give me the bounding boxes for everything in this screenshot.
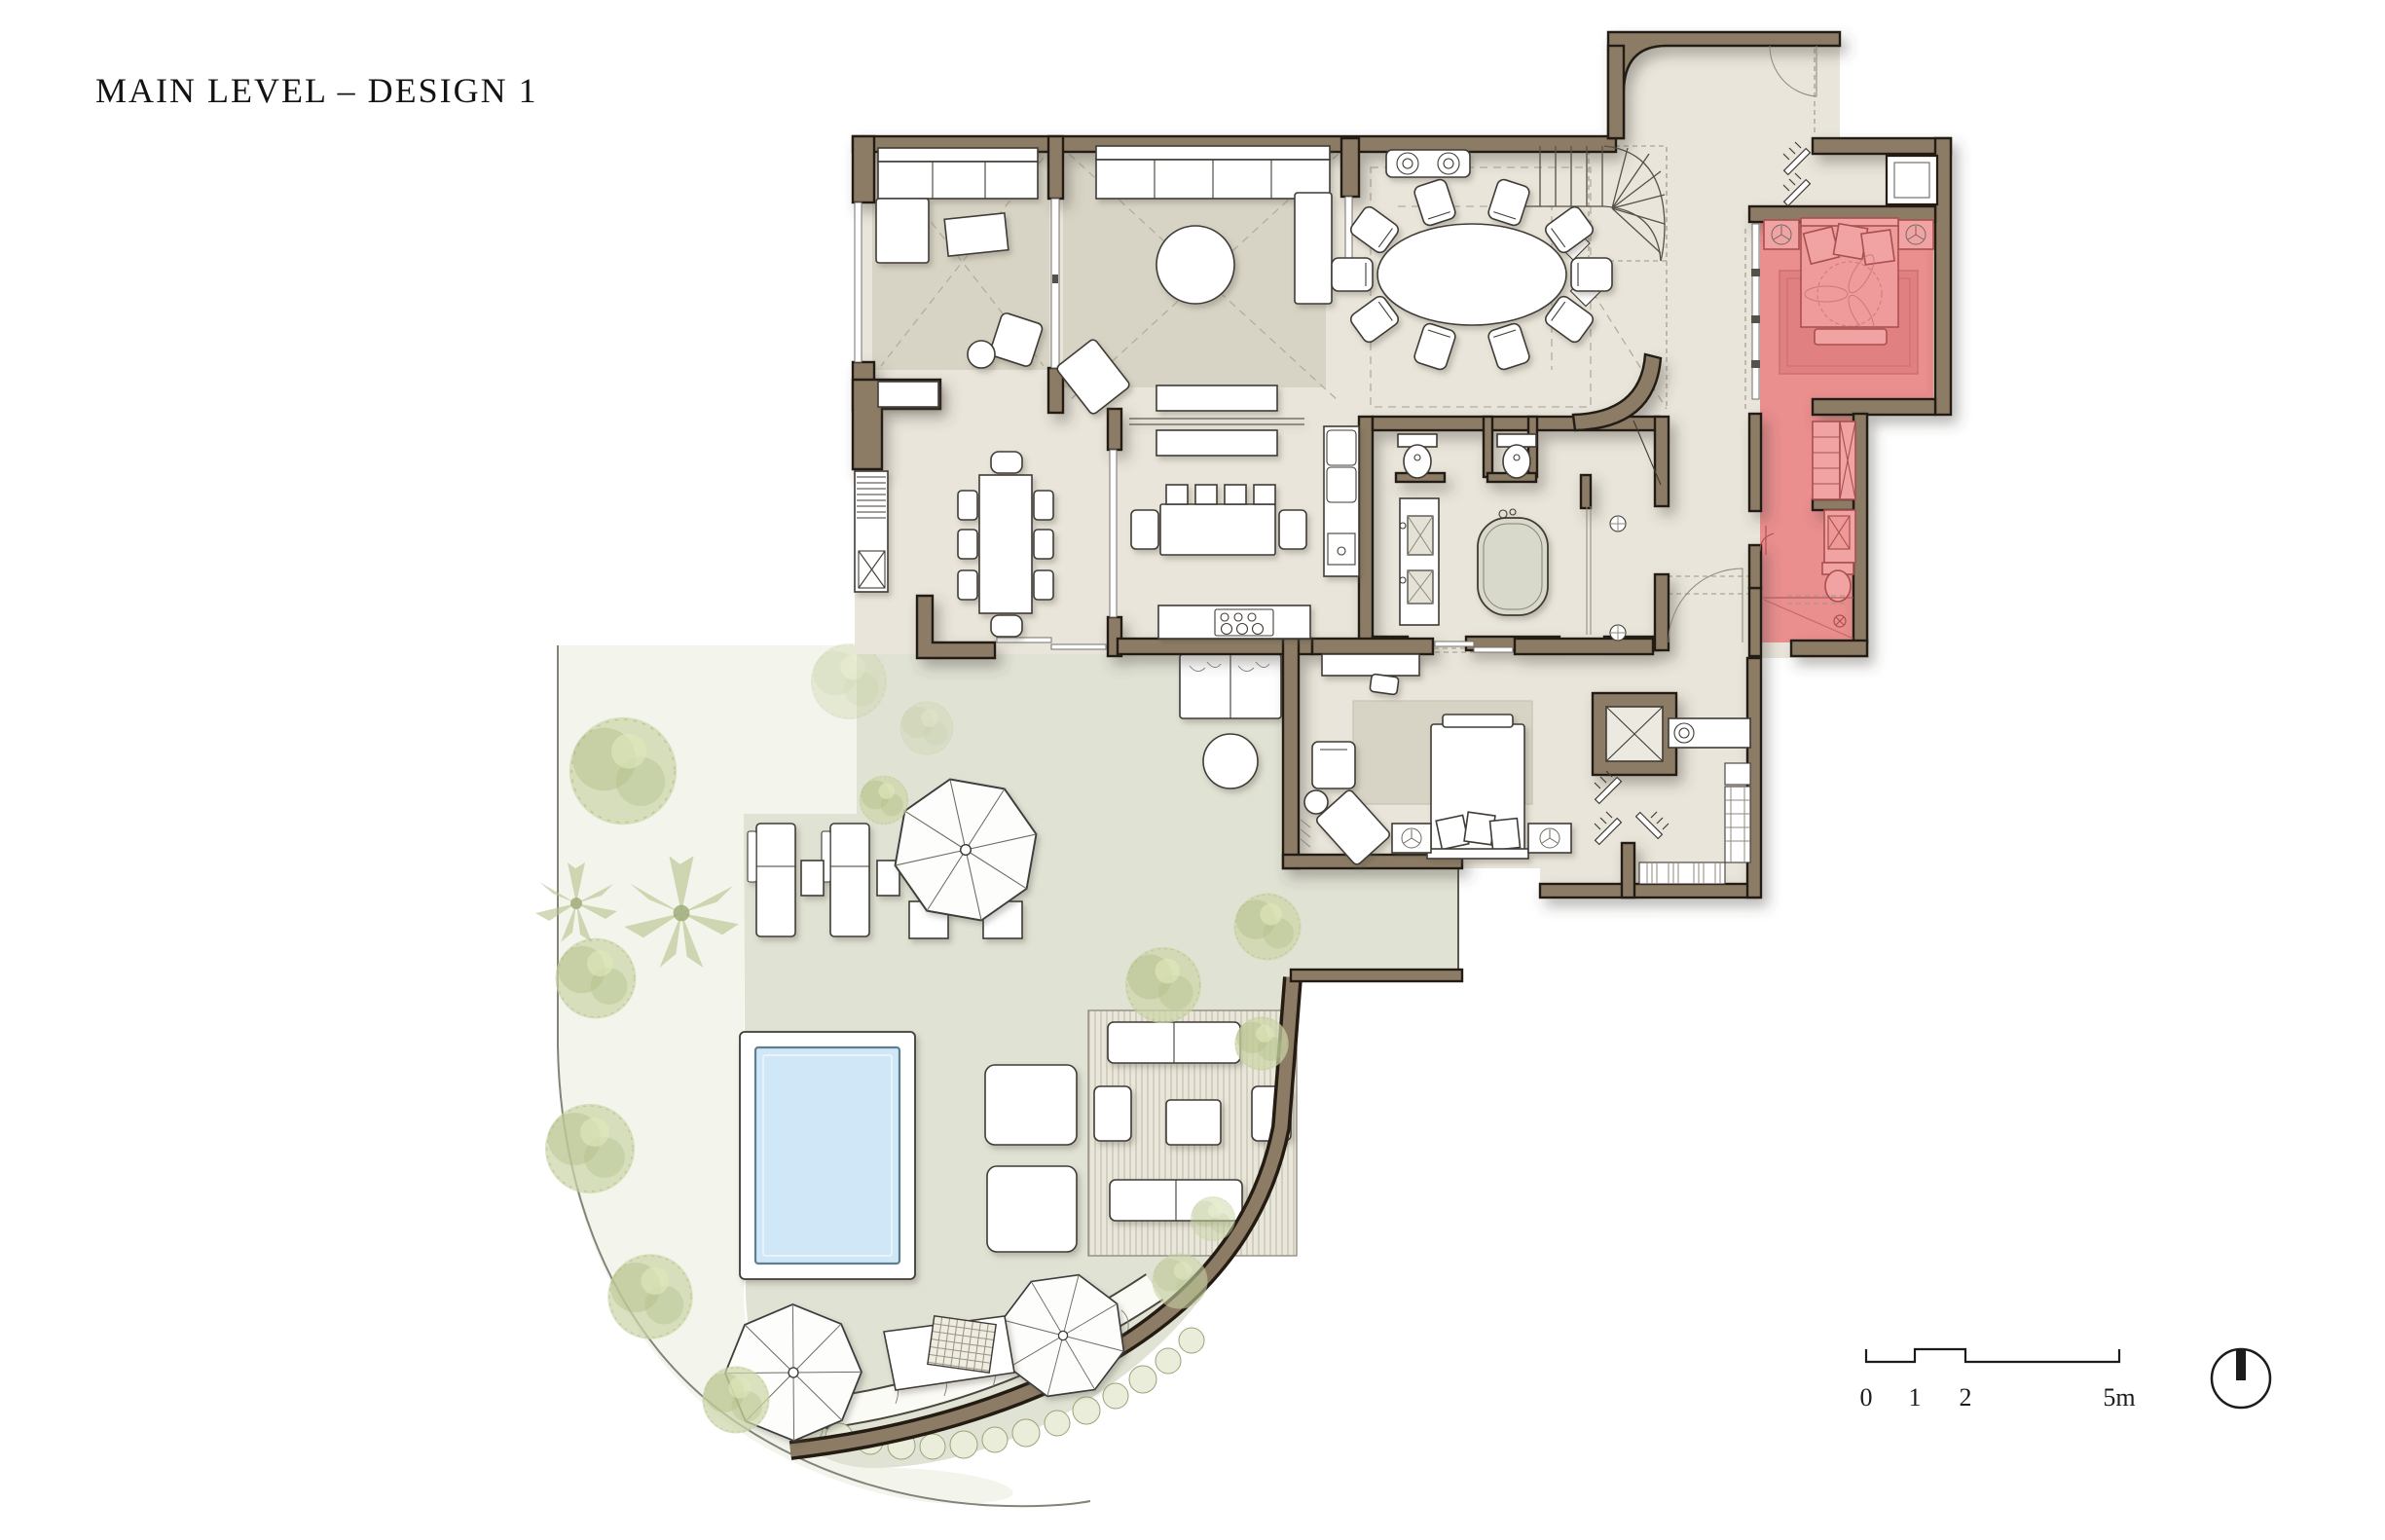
- closet-south-wall: [1540, 884, 1760, 898]
- armchair: [1312, 742, 1355, 788]
- sofa: [878, 162, 1038, 199]
- master-wardrobe: [1813, 422, 1855, 499]
- kitchen-counter: [1156, 430, 1277, 456]
- scale-label-5m: 5m: [2103, 1383, 2135, 1412]
- round-coffee-table: [1156, 226, 1234, 304]
- tree-icon: [899, 701, 953, 754]
- pillow: [1490, 819, 1521, 851]
- toilet: [1825, 570, 1851, 602]
- sofa-chaise: [876, 199, 929, 263]
- scale-bar: 0 1 2 5m: [1860, 1349, 2136, 1412]
- stool: [1254, 485, 1275, 504]
- tree-icon: [1234, 894, 1302, 961]
- terrace-table: [987, 1166, 1077, 1252]
- niche-wall: [1813, 138, 1951, 154]
- pillow: [1861, 230, 1894, 265]
- sofa-back: [878, 148, 1038, 162]
- tree-icon: [1191, 1196, 1235, 1241]
- master-bedroom-window: [1752, 224, 1759, 399]
- tree-icon: [1125, 947, 1201, 1023]
- tree-icon: [607, 1254, 692, 1338]
- sofa-back: [1096, 146, 1330, 160]
- outdoor-coffee-table: [1166, 1100, 1221, 1145]
- pouf: [1203, 734, 1258, 788]
- side-table: [801, 861, 824, 896]
- dining-table: [1377, 224, 1566, 325]
- tree-icon: [811, 643, 887, 719]
- tree-icon: [1234, 1016, 1288, 1070]
- pillow: [1436, 815, 1469, 849]
- floor-plan-canvas: 0 1 2 5m: [0, 0, 2385, 1540]
- scale-label-2: 2: [1960, 1383, 1972, 1412]
- media-console: [1156, 385, 1277, 411]
- stool: [1195, 485, 1217, 504]
- parapet-wall: [1291, 970, 1462, 981]
- headboard: [1427, 849, 1528, 859]
- tree-icon: [860, 776, 909, 825]
- side-table: [968, 341, 995, 368]
- tree-icon: [569, 717, 677, 825]
- end-chair: [1279, 510, 1306, 549]
- garden-dining-table: [979, 475, 1032, 613]
- pillow: [1804, 227, 1840, 264]
- coffee-table: [944, 213, 1009, 256]
- kitchen-sink: [1328, 533, 1355, 565]
- master-bedroom: [1764, 218, 1933, 374]
- desk-chair: [1370, 674, 1399, 695]
- bed-bench: [1815, 329, 1887, 345]
- window: [855, 202, 862, 362]
- north-arrow-icon: [2212, 1349, 2270, 1408]
- scale-label-1: 1: [1909, 1383, 1922, 1412]
- stool: [1225, 485, 1246, 504]
- tree-icon: [1152, 1253, 1207, 1308]
- shelf-box: [1725, 763, 1750, 785]
- side-table: [1304, 790, 1328, 814]
- bed-bench: [1443, 715, 1513, 727]
- garden-room-glass: [1110, 450, 1117, 617]
- terrace-table: [985, 1065, 1077, 1145]
- fridge: [1327, 467, 1356, 502]
- bathtub: [1478, 509, 1548, 615]
- tree-icon: [556, 938, 637, 1019]
- end-chair: [1131, 510, 1158, 549]
- pool-water: [755, 1047, 899, 1264]
- desk: [1322, 654, 1419, 676]
- stool: [1166, 485, 1188, 504]
- scale-label-0: 0: [1860, 1383, 1873, 1412]
- pool: [740, 1032, 915, 1279]
- tree-icon: [545, 1104, 635, 1193]
- fridge: [1327, 430, 1356, 465]
- shelf-column: [1725, 787, 1750, 862]
- skylight-box: [1887, 156, 1937, 204]
- sofa-return: [1295, 193, 1332, 304]
- tree-icon: [703, 1367, 770, 1434]
- counter: [878, 382, 938, 407]
- kitchen-table: [1160, 504, 1275, 555]
- outdoor-armchair: [1094, 1086, 1131, 1141]
- bedroom-west-wall: [1283, 639, 1299, 868]
